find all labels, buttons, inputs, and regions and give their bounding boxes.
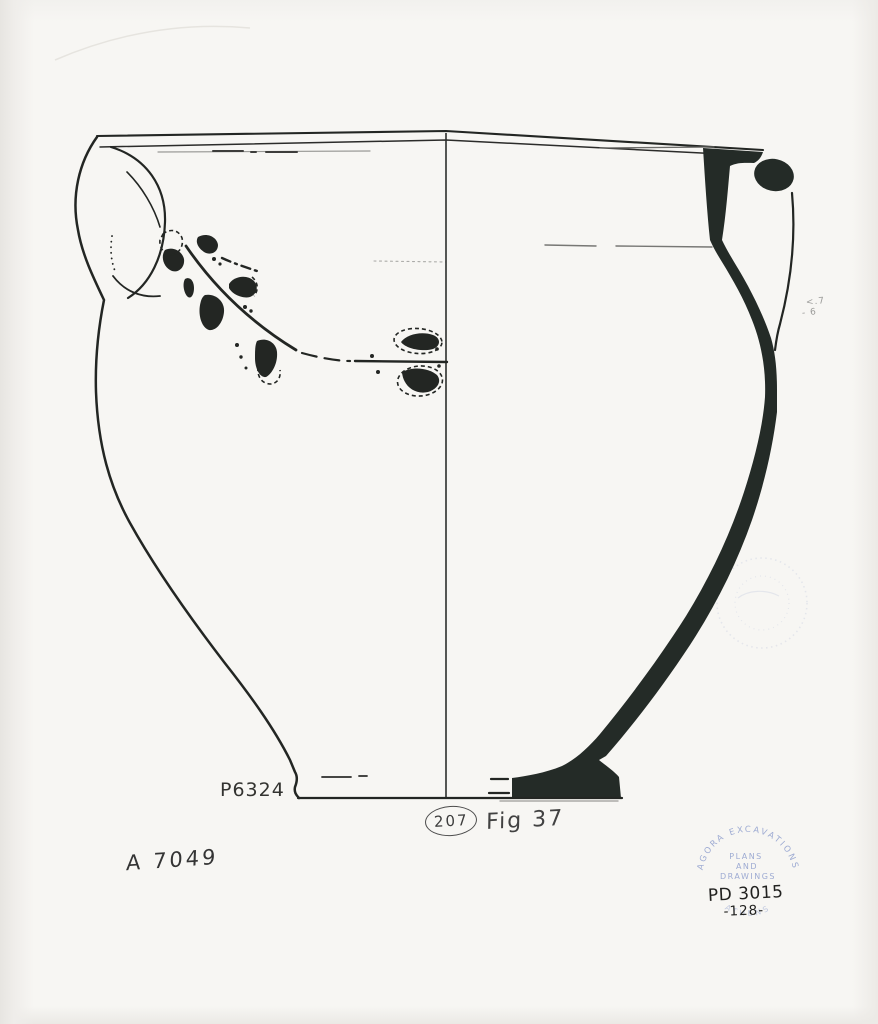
right-handle-knob bbox=[751, 155, 797, 195]
figure-number-note: Fig 37 bbox=[486, 806, 564, 835]
svg-text:PLANS: PLANS bbox=[729, 852, 763, 861]
catalog-number-label: P6324 bbox=[220, 779, 285, 801]
rim-lines bbox=[97, 131, 763, 262]
pencil-measure-note-lower: - 6 bbox=[802, 307, 818, 318]
stamp-handwritten-numbers: PD 3015 -128- bbox=[708, 882, 784, 920]
scanned-drawing-sheet: { "labels": { "catalog_number": "P6324",… bbox=[0, 0, 878, 1024]
pencil-measure-note-upper: <.7 bbox=[806, 296, 826, 308]
left-body-outline bbox=[75, 137, 299, 798]
handle-outer-profile-line bbox=[775, 193, 793, 350]
left-handle-outline bbox=[111, 147, 165, 298]
plate-number-text: 207 bbox=[433, 811, 469, 831]
left-handle-attachment bbox=[113, 276, 160, 296]
handle-stipple-dots bbox=[111, 236, 115, 271]
svg-text:DRAWINGS: DRAWINGS bbox=[720, 872, 776, 881]
svg-text:-128-: -128- bbox=[723, 902, 764, 919]
svg-text:AND: AND bbox=[736, 862, 758, 871]
paper-crease bbox=[55, 26, 250, 60]
archive-stamp: AGORA EXCAVATIONS ATHENS PLANS AND DRAWI… bbox=[688, 820, 820, 940]
leaf-garland-decoration bbox=[160, 231, 447, 398]
